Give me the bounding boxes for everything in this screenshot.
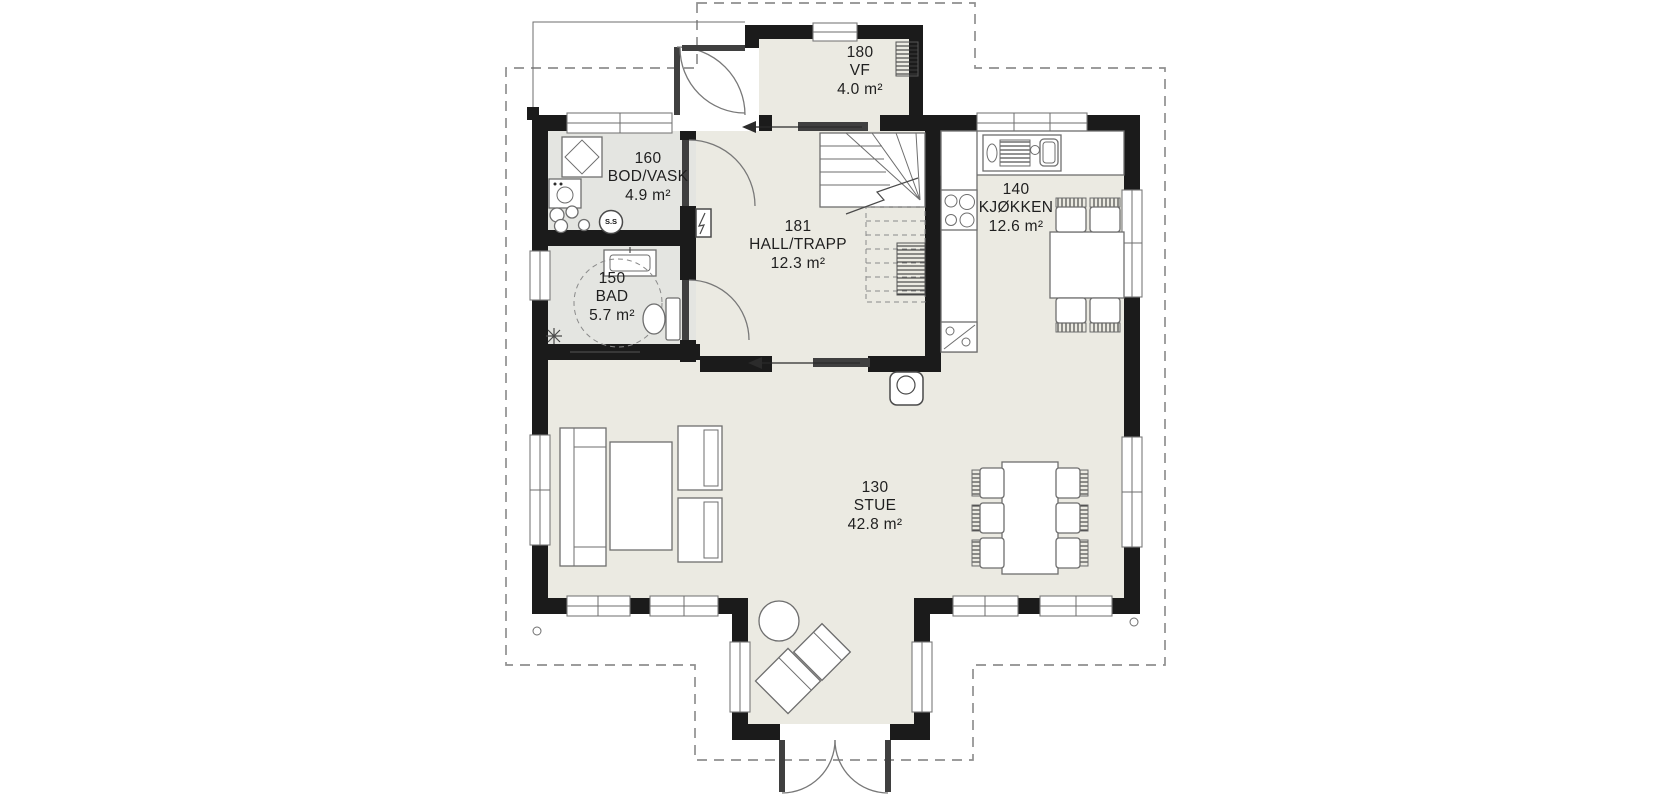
room-name: STUE bbox=[790, 497, 960, 515]
floor-plan-page: 180 VF 4.0 m² 160 BOD/VASK 4.9 m² 150 BA… bbox=[0, 0, 1670, 800]
room-label-vf: 180 VF 4.0 m² bbox=[775, 44, 945, 99]
kitchen-sink bbox=[983, 135, 1061, 171]
room-label-kjokken: 140 KJØKKEN 12.6 m² bbox=[931, 181, 1101, 236]
sofa bbox=[560, 428, 606, 566]
armchair bbox=[678, 498, 722, 562]
room-name: VF bbox=[775, 62, 945, 80]
room-number: 160 bbox=[563, 150, 733, 168]
downspout bbox=[533, 627, 541, 635]
window bbox=[567, 596, 630, 616]
room-number: 140 bbox=[931, 181, 1101, 199]
porch-outline bbox=[527, 22, 745, 120]
window bbox=[953, 596, 1018, 616]
coffee-table bbox=[610, 442, 672, 550]
dining-chairs-right bbox=[1056, 468, 1088, 568]
floor-plan-drawing bbox=[0, 0, 1670, 800]
room-number: 150 bbox=[527, 270, 697, 288]
room-area: 42.8 m² bbox=[790, 516, 960, 534]
room-area: 12.6 m² bbox=[931, 218, 1101, 236]
room-area: 12.3 m² bbox=[713, 255, 883, 273]
electrical-panel bbox=[696, 209, 711, 237]
room-label-stue: 130 STUE 42.8 m² bbox=[790, 479, 960, 534]
dining-group bbox=[972, 462, 1088, 574]
window bbox=[1040, 596, 1112, 616]
room-number: 181 bbox=[713, 218, 883, 236]
room-label-bad: 150 BAD 5.7 m² bbox=[527, 270, 697, 325]
room-name: HALL/TRAPP bbox=[713, 236, 883, 254]
room-number: 180 bbox=[775, 44, 945, 62]
room-number: 130 bbox=[790, 479, 960, 497]
room-name: KJØKKEN bbox=[931, 199, 1101, 217]
window bbox=[977, 113, 1087, 133]
water-heater-label: S.S bbox=[591, 217, 631, 226]
window bbox=[1122, 437, 1142, 547]
dishwasher bbox=[941, 322, 977, 352]
french-doors-stue bbox=[779, 740, 891, 793]
dining-table bbox=[1002, 462, 1058, 574]
window bbox=[1122, 190, 1142, 297]
dining-chairs-left bbox=[972, 468, 1004, 568]
armchair bbox=[678, 426, 722, 490]
downspout bbox=[1130, 618, 1138, 626]
kitchen-counter-side bbox=[941, 131, 977, 352]
room-name: BAD bbox=[527, 288, 697, 306]
window bbox=[912, 642, 932, 712]
window bbox=[650, 596, 718, 616]
room-area: 4.0 m² bbox=[775, 81, 945, 99]
window bbox=[813, 23, 857, 41]
round-table bbox=[759, 601, 799, 641]
room-area: 4.9 m² bbox=[563, 187, 733, 205]
exterior-door-bod bbox=[674, 47, 745, 115]
room-label-hall-trapp: 181 HALL/TRAPP 12.3 m² bbox=[713, 218, 883, 273]
room-name: BOD/VASK bbox=[563, 168, 733, 186]
floor-drain bbox=[546, 328, 562, 344]
window bbox=[567, 113, 672, 133]
wood-stove bbox=[890, 372, 923, 405]
window bbox=[730, 642, 750, 712]
room-area: 5.7 m² bbox=[527, 307, 697, 325]
window bbox=[530, 435, 550, 545]
room-label-bod-vask: 160 BOD/VASK 4.9 m² bbox=[563, 150, 733, 205]
